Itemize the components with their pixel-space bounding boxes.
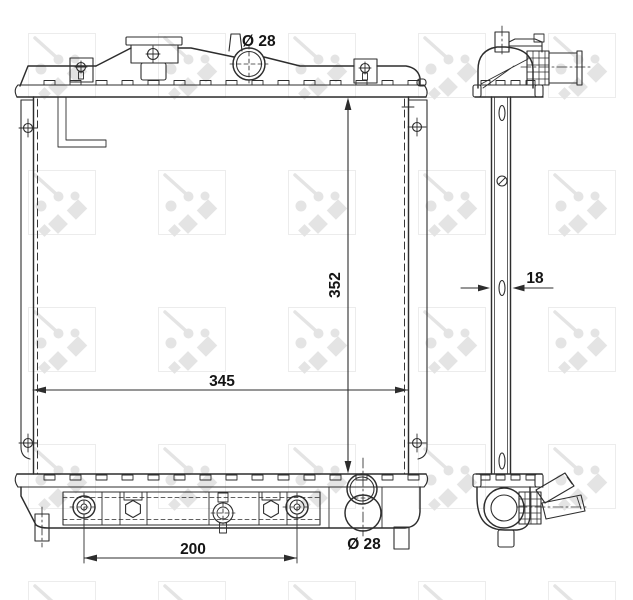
outlet-pipes	[517, 473, 589, 524]
top-tank	[15, 34, 427, 97]
radiator-technical-drawing: 345 352 200 18	[0, 0, 633, 600]
side-channel	[492, 97, 511, 474]
bottom-stub	[394, 527, 409, 549]
right-bolt-fitting	[354, 59, 377, 83]
core	[19, 97, 427, 474]
dim-top-port-label: Ø 28	[242, 33, 276, 50]
hex-plug-left	[124, 492, 142, 518]
inlet-pipe	[521, 51, 590, 85]
side-bottom-stub	[498, 530, 514, 547]
dim-mount-spacing-label: 200	[180, 541, 206, 558]
dim-core-height-label: 352	[327, 272, 344, 298]
side-top-tank	[473, 26, 590, 97]
dimensions: 345 352 200 18	[33, 33, 553, 563]
drain-stub	[35, 507, 49, 547]
drawing-layer: 345 352 200 18	[0, 0, 633, 600]
bottom-outlet-port	[345, 458, 381, 536]
front-view	[15, 34, 427, 549]
dim-core-thickness: 18	[461, 270, 553, 291]
dim-core-width-label: 345	[209, 373, 235, 390]
dim-core-height: 352	[327, 98, 351, 474]
drain-plug	[211, 493, 235, 533]
mounting-hole-marks	[19, 118, 426, 452]
hex-plug-right	[262, 492, 280, 518]
dim-core-thickness-label: 18	[526, 270, 544, 287]
dim-bottom-port-label: Ø 28	[347, 536, 381, 553]
filler-neck	[230, 45, 268, 83]
dim-mount-spacing: 200	[84, 514, 297, 563]
cap-housing	[126, 37, 182, 80]
side-bottom-tank	[473, 473, 589, 547]
left-bolt-fitting	[70, 58, 93, 82]
dim-core-width: 345	[33, 373, 408, 393]
